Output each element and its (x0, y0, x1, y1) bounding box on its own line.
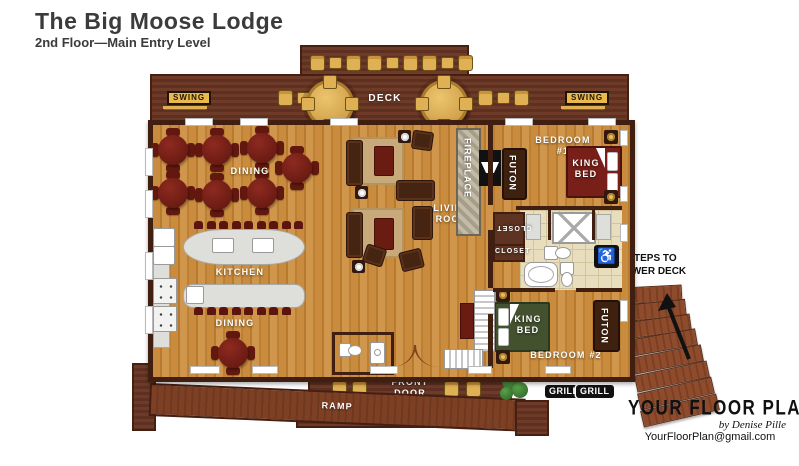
accessible-icon: ♿ (594, 245, 619, 268)
deck-chair-icon (345, 97, 359, 111)
window (190, 366, 220, 374)
dining-table (150, 127, 196, 173)
plan-title: The Big Moose Lodge (35, 8, 283, 35)
coffee-table-icon (374, 218, 394, 250)
dining-table (194, 172, 240, 218)
window (145, 190, 153, 218)
futon2-label: FUTON (598, 308, 609, 344)
interior-wall (516, 206, 622, 210)
deck-chair-set (422, 55, 473, 71)
swing-right-badge: SWING (565, 91, 609, 105)
nightstand-lamp-icon (604, 190, 618, 204)
bathtub-icon (524, 262, 558, 287)
logo: YOUR FLOOR PLAN by Denise Pille YourFloo… (628, 398, 792, 443)
stool-row (194, 221, 303, 229)
deck-chair-icon (323, 75, 337, 89)
window (185, 118, 213, 126)
swing-left-badge: SWING (167, 91, 211, 105)
sofa-icon (346, 212, 363, 258)
deck-chair-icon (514, 90, 529, 106)
up-arrow-icon (655, 293, 699, 365)
toilet-icon (560, 262, 574, 275)
swing-right-icon (561, 106, 605, 109)
deck-side-table-icon (497, 92, 510, 104)
vanity-sink-icon (596, 214, 611, 240)
window (330, 118, 358, 126)
lamp-icon (352, 260, 365, 273)
interior-wall (488, 314, 493, 368)
nightstand-lamp-icon (604, 130, 618, 144)
window (252, 366, 278, 374)
deck-side-table-icon (386, 57, 399, 69)
interior-wall (576, 288, 622, 292)
deck-chair-icon (403, 55, 418, 71)
page-title: The Big Moose Lodge 2nd Floor—Main Entry… (35, 8, 283, 50)
stair-railing (460, 303, 474, 339)
stove-icon (153, 278, 177, 304)
window (505, 118, 533, 126)
deck-chair-icon (437, 75, 451, 89)
grill-2-badge: GRILL (576, 385, 614, 398)
sink-icon (186, 286, 204, 304)
armchair-icon (411, 130, 434, 152)
window (620, 130, 628, 146)
king-bed2-label: KING BED (508, 314, 548, 337)
window (370, 366, 398, 374)
nightstand-lamp-icon (496, 350, 510, 364)
window (545, 366, 571, 374)
coffee-table-icon (374, 146, 394, 176)
dining-upper-label: DINING (215, 166, 285, 177)
closet-vertical-label: CLOSET (496, 222, 532, 231)
bush-icon (512, 382, 528, 398)
bush-icon (500, 387, 513, 400)
sink-icon (212, 238, 234, 253)
window (620, 300, 628, 322)
deck-chair-set (310, 55, 361, 71)
lamp-icon (355, 186, 368, 199)
plan-subtitle: 2nd Floor—Main Entry Level (35, 35, 283, 50)
toilet-icon (339, 343, 351, 357)
window (620, 186, 628, 202)
dining-table (150, 170, 196, 216)
interior-wall (548, 210, 551, 240)
stool-row (194, 307, 291, 315)
floor-plan-page: The Big Moose Lodge 2nd Floor—Main Entry… (0, 0, 799, 466)
deck-label: DECK (360, 93, 410, 106)
ramp-step (515, 400, 549, 436)
lamp-icon (398, 130, 411, 143)
swing-left-icon (163, 106, 207, 109)
deck-chair-icon (301, 97, 315, 111)
drain-icon (374, 349, 381, 356)
ramp-label: RAMP (151, 393, 523, 420)
dining-lower-label: DINING (200, 318, 270, 329)
sofa-icon (396, 180, 435, 201)
deck-chair-icon (459, 97, 473, 111)
deck-side-table-icon (329, 57, 342, 69)
window (145, 306, 153, 334)
logo-brand: YOUR FLOOR PLAN (628, 396, 792, 421)
deck-chair-icon (458, 55, 473, 71)
logo-byline: by Denise Pille (628, 419, 786, 431)
bedroom2-label: BEDROOM #2 (530, 350, 602, 361)
interior-wall (493, 288, 555, 292)
pillow-icon (607, 152, 618, 171)
fridge-icon (153, 246, 175, 265)
window (588, 118, 616, 126)
kitchen-label: KITCHEN (205, 267, 275, 278)
deck-chair-icon (346, 55, 361, 71)
porch-chair-icon (466, 381, 481, 397)
window (145, 148, 153, 176)
sofa-icon (346, 140, 363, 186)
toilet-icon (544, 246, 558, 260)
interior-wall (488, 230, 493, 288)
window (620, 224, 628, 242)
window (145, 252, 153, 280)
king-bed1-label: KING BED (566, 158, 606, 181)
deck-chair-icon (278, 90, 293, 106)
deck-chair-icon (415, 97, 429, 111)
interior-wall (592, 210, 595, 240)
deck-chair-set (478, 90, 529, 106)
deck-chair-icon (422, 55, 437, 71)
stove-icon (153, 306, 177, 332)
logo-email: YourFloorPlan@gmail.com (628, 431, 792, 443)
window (468, 366, 492, 374)
kitchen-island (183, 229, 305, 265)
deck-chair-set (367, 55, 418, 71)
fridge-icon (153, 228, 175, 247)
deck-chair-icon (478, 90, 493, 106)
interior-wall (488, 125, 493, 205)
deck-chair-icon (367, 55, 382, 71)
futon1-label: FUTON (506, 155, 517, 191)
shower-icon (552, 212, 596, 244)
deck-side-table-icon (441, 57, 454, 69)
deck-chair-icon (310, 55, 325, 71)
fireplace-label: FIREPLACE (461, 138, 472, 198)
closet-horizontal-label: CLOSET (495, 248, 531, 257)
window (240, 118, 268, 126)
sink-icon (252, 238, 274, 253)
